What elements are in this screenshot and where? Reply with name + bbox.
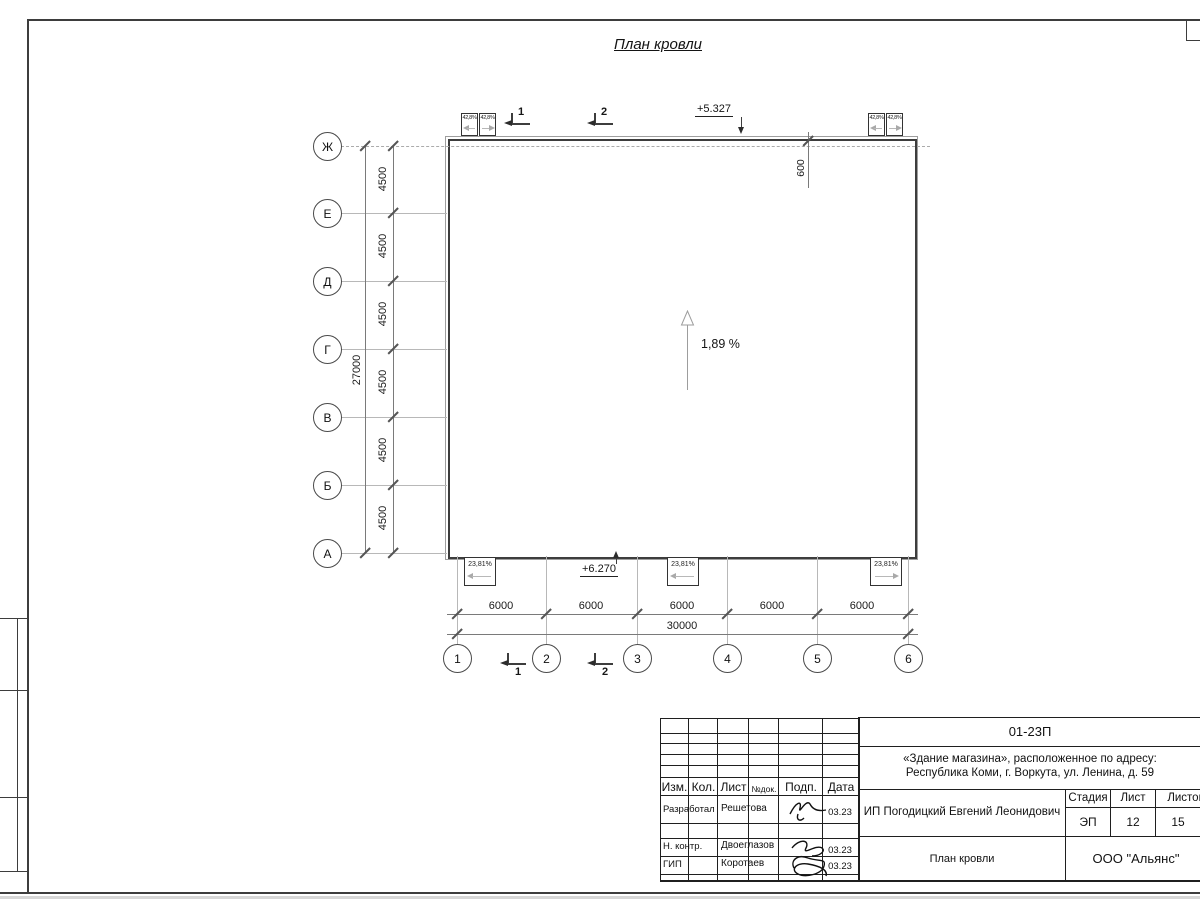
dim-value: 6000 <box>652 600 712 612</box>
eave-slope-value: 23,81% <box>465 561 495 568</box>
tb-name: Двоеглазов <box>721 840 774 851</box>
axis-line <box>817 556 818 644</box>
dim-value: 4500 <box>377 357 389 407</box>
slope-value: 1,89 % <box>701 337 740 351</box>
tb-company: ООО "Альянс" <box>1066 851 1200 866</box>
frame-top <box>27 19 1200 21</box>
axis-label: Д <box>323 275 331 289</box>
drain-slope-value: 42,8% <box>462 115 477 121</box>
tb-name: Решетова <box>721 803 767 814</box>
side-stamp-line <box>0 690 28 691</box>
section-mark-line <box>507 663 526 665</box>
section-number: 1 <box>515 666 521 678</box>
axis-label: 1 <box>454 652 461 666</box>
axis-bubble-bottom: 1 <box>443 644 472 673</box>
up-arrow-icon <box>613 551 619 558</box>
titleblock-line <box>660 733 859 734</box>
axis-label: Г <box>324 343 331 357</box>
side-stamp-line <box>17 618 18 871</box>
axis-label: В <box>323 411 331 425</box>
tb-doc-number: 01-23П <box>860 724 1200 739</box>
tb-sheet-label: Лист <box>1111 792 1155 804</box>
axis-dashed-line <box>341 146 930 147</box>
axis-label: 4 <box>724 652 731 666</box>
slope-dir-line <box>472 576 491 577</box>
dim-total-value: 27000 <box>351 340 363 400</box>
elevation-leader <box>616 557 617 564</box>
axis-line <box>341 485 447 486</box>
frame-corner-cell <box>1186 19 1200 41</box>
section-number: 2 <box>601 106 607 118</box>
axis-bubble-bottom: 2 <box>532 644 561 673</box>
frame-left <box>27 19 29 893</box>
drain-funnel-box: 42,8% <box>868 113 885 136</box>
section-arrow-icon <box>504 120 512 126</box>
tb-role: Разработал <box>663 804 715 815</box>
tb-col-doc: №док. <box>749 784 779 794</box>
axis-bubble-bottom: 3 <box>623 644 652 673</box>
axis-line <box>727 556 728 644</box>
titleblock-line <box>660 754 859 755</box>
axis-label: 5 <box>814 652 821 666</box>
tb-stage-label: Стадия <box>1066 792 1110 804</box>
tb-client: ИП Погодицкий Евгений Леонидович <box>860 806 1064 818</box>
axis-bubble-bottom: 4 <box>713 644 742 673</box>
axis-line <box>341 213 447 214</box>
titleblock-line <box>858 746 1200 747</box>
axis-label: 6 <box>905 652 912 666</box>
dim-value: 4500 <box>377 154 389 204</box>
slope-dir-line <box>875 576 894 577</box>
axis-line <box>637 556 638 644</box>
axis-bubble-left: А <box>313 539 342 568</box>
titleblock-line <box>1065 807 1200 808</box>
section-arrow-icon <box>587 660 595 666</box>
titleblock-line <box>660 718 859 719</box>
titleblock-line <box>660 777 859 778</box>
axis-line <box>341 553 447 554</box>
side-stamp-line <box>0 797 28 798</box>
tb-col-izm: Изм. <box>660 780 689 794</box>
dim-line-total-v <box>365 146 366 553</box>
axis-bubble-left: Ж <box>313 132 342 161</box>
tb-stage-value: ЭП <box>1066 815 1110 829</box>
drain-funnel-box: 42,8% <box>886 113 903 136</box>
tb-role: Н. контр. <box>663 841 702 852</box>
axis-label: Ж <box>322 140 333 154</box>
axis-label: Б <box>324 479 332 493</box>
titleblock-line <box>660 880 1200 882</box>
slope-dir-icon <box>893 573 899 579</box>
slope-dir-line <box>467 128 475 129</box>
drain-funnel-box: 42,8% <box>461 113 478 136</box>
slope-dir-line <box>675 576 694 577</box>
tb-col-kol: Кол. <box>689 780 718 794</box>
section-mark-line <box>594 663 613 665</box>
tb-sheets-value: 15 <box>1156 815 1200 829</box>
signature <box>786 834 834 880</box>
drain-slope-value: 42,8% <box>480 115 495 121</box>
eave-slope-value: 23,81% <box>871 561 901 568</box>
dim-value: 6000 <box>561 600 621 612</box>
titleblock-line <box>858 836 1200 837</box>
tb-object-line1: «Здание магазина», расположенное по адре… <box>860 753 1200 765</box>
titleblock-line <box>858 717 1200 718</box>
tb-name: Коротаев <box>721 858 764 869</box>
section-arrow-icon <box>587 120 595 126</box>
dim-value: 4500 <box>377 221 389 271</box>
dim-total-value: 30000 <box>652 620 712 632</box>
elevation-mark-bottom: +6.270 <box>580 563 618 577</box>
dim-value: 6000 <box>471 600 531 612</box>
axis-line <box>546 556 547 644</box>
dim-value: 6000 <box>742 600 802 612</box>
dim-value: 4500 <box>377 289 389 339</box>
slope-arrow-icon <box>679 310 696 392</box>
page-edge <box>0 896 1200 899</box>
dim-value: 4500 <box>377 425 389 475</box>
slope-dir-icon <box>489 125 495 131</box>
axis-label: А <box>323 547 331 561</box>
frame-bottom <box>0 892 1200 894</box>
axis-bubble-left: Е <box>313 199 342 228</box>
tb-object-line2: Республика Коми, г. Воркута, ул. Ленина,… <box>860 767 1200 779</box>
axis-line <box>341 281 447 282</box>
section-arrow-icon <box>500 660 508 666</box>
drawing-sheet: План кровли Ж Е Д Г В Б А 4500 4500 4500… <box>0 0 1200 900</box>
section-number: 2 <box>602 666 608 678</box>
section-mark-line <box>511 123 530 125</box>
titleblock-line <box>660 743 859 744</box>
tb-sheet-name: План кровли <box>860 853 1064 865</box>
eave-slope-box: 23,81% <box>464 557 496 586</box>
drawing-title: План кровли <box>558 36 758 53</box>
dim-value: 6000 <box>832 600 892 612</box>
signature <box>786 792 830 826</box>
tb-col-list: Лист <box>718 780 749 794</box>
section-number: 1 <box>518 106 524 118</box>
drain-slope-value: 42,8% <box>869 115 884 121</box>
eave-slope-box: 23,81% <box>870 557 902 586</box>
drain-slope-value: 42,8% <box>887 115 902 121</box>
axis-label: 2 <box>543 652 550 666</box>
eave-slope-box: 23,81% <box>667 557 699 586</box>
dim-value: 4500 <box>377 493 389 543</box>
tb-sheets-label: Листов <box>1156 792 1200 804</box>
drain-funnel-box: 42,8% <box>479 113 496 136</box>
axis-label: Е <box>323 207 331 221</box>
slope-dir-line <box>874 128 882 129</box>
titleblock-line <box>660 765 859 766</box>
tb-role: ГИП <box>663 859 682 870</box>
axis-bubble-bottom: 5 <box>803 644 832 673</box>
axis-bubble-left: Б <box>313 471 342 500</box>
axis-label: 3 <box>634 652 641 666</box>
axis-bubble-bottom: 6 <box>894 644 923 673</box>
axis-bubble-left: Д <box>313 267 342 296</box>
down-arrow-icon <box>738 127 744 134</box>
slope-dir-icon <box>896 125 902 131</box>
titleblock-line <box>858 789 1200 790</box>
tb-sheet-value: 12 <box>1111 815 1155 829</box>
side-stamp-line <box>0 618 28 619</box>
axis-bubble-left: В <box>313 403 342 432</box>
section-mark-line <box>594 123 613 125</box>
dim-line-h <box>447 614 918 615</box>
axis-bubble-left: Г <box>313 335 342 364</box>
eave-slope-value: 23,81% <box>668 561 698 568</box>
parapet-dim-value: 600 <box>795 153 807 183</box>
dim-line-total-h <box>447 634 918 635</box>
axis-line <box>341 417 447 418</box>
elevation-mark-top: +5.327 <box>695 103 733 117</box>
side-stamp-line <box>0 871 28 872</box>
